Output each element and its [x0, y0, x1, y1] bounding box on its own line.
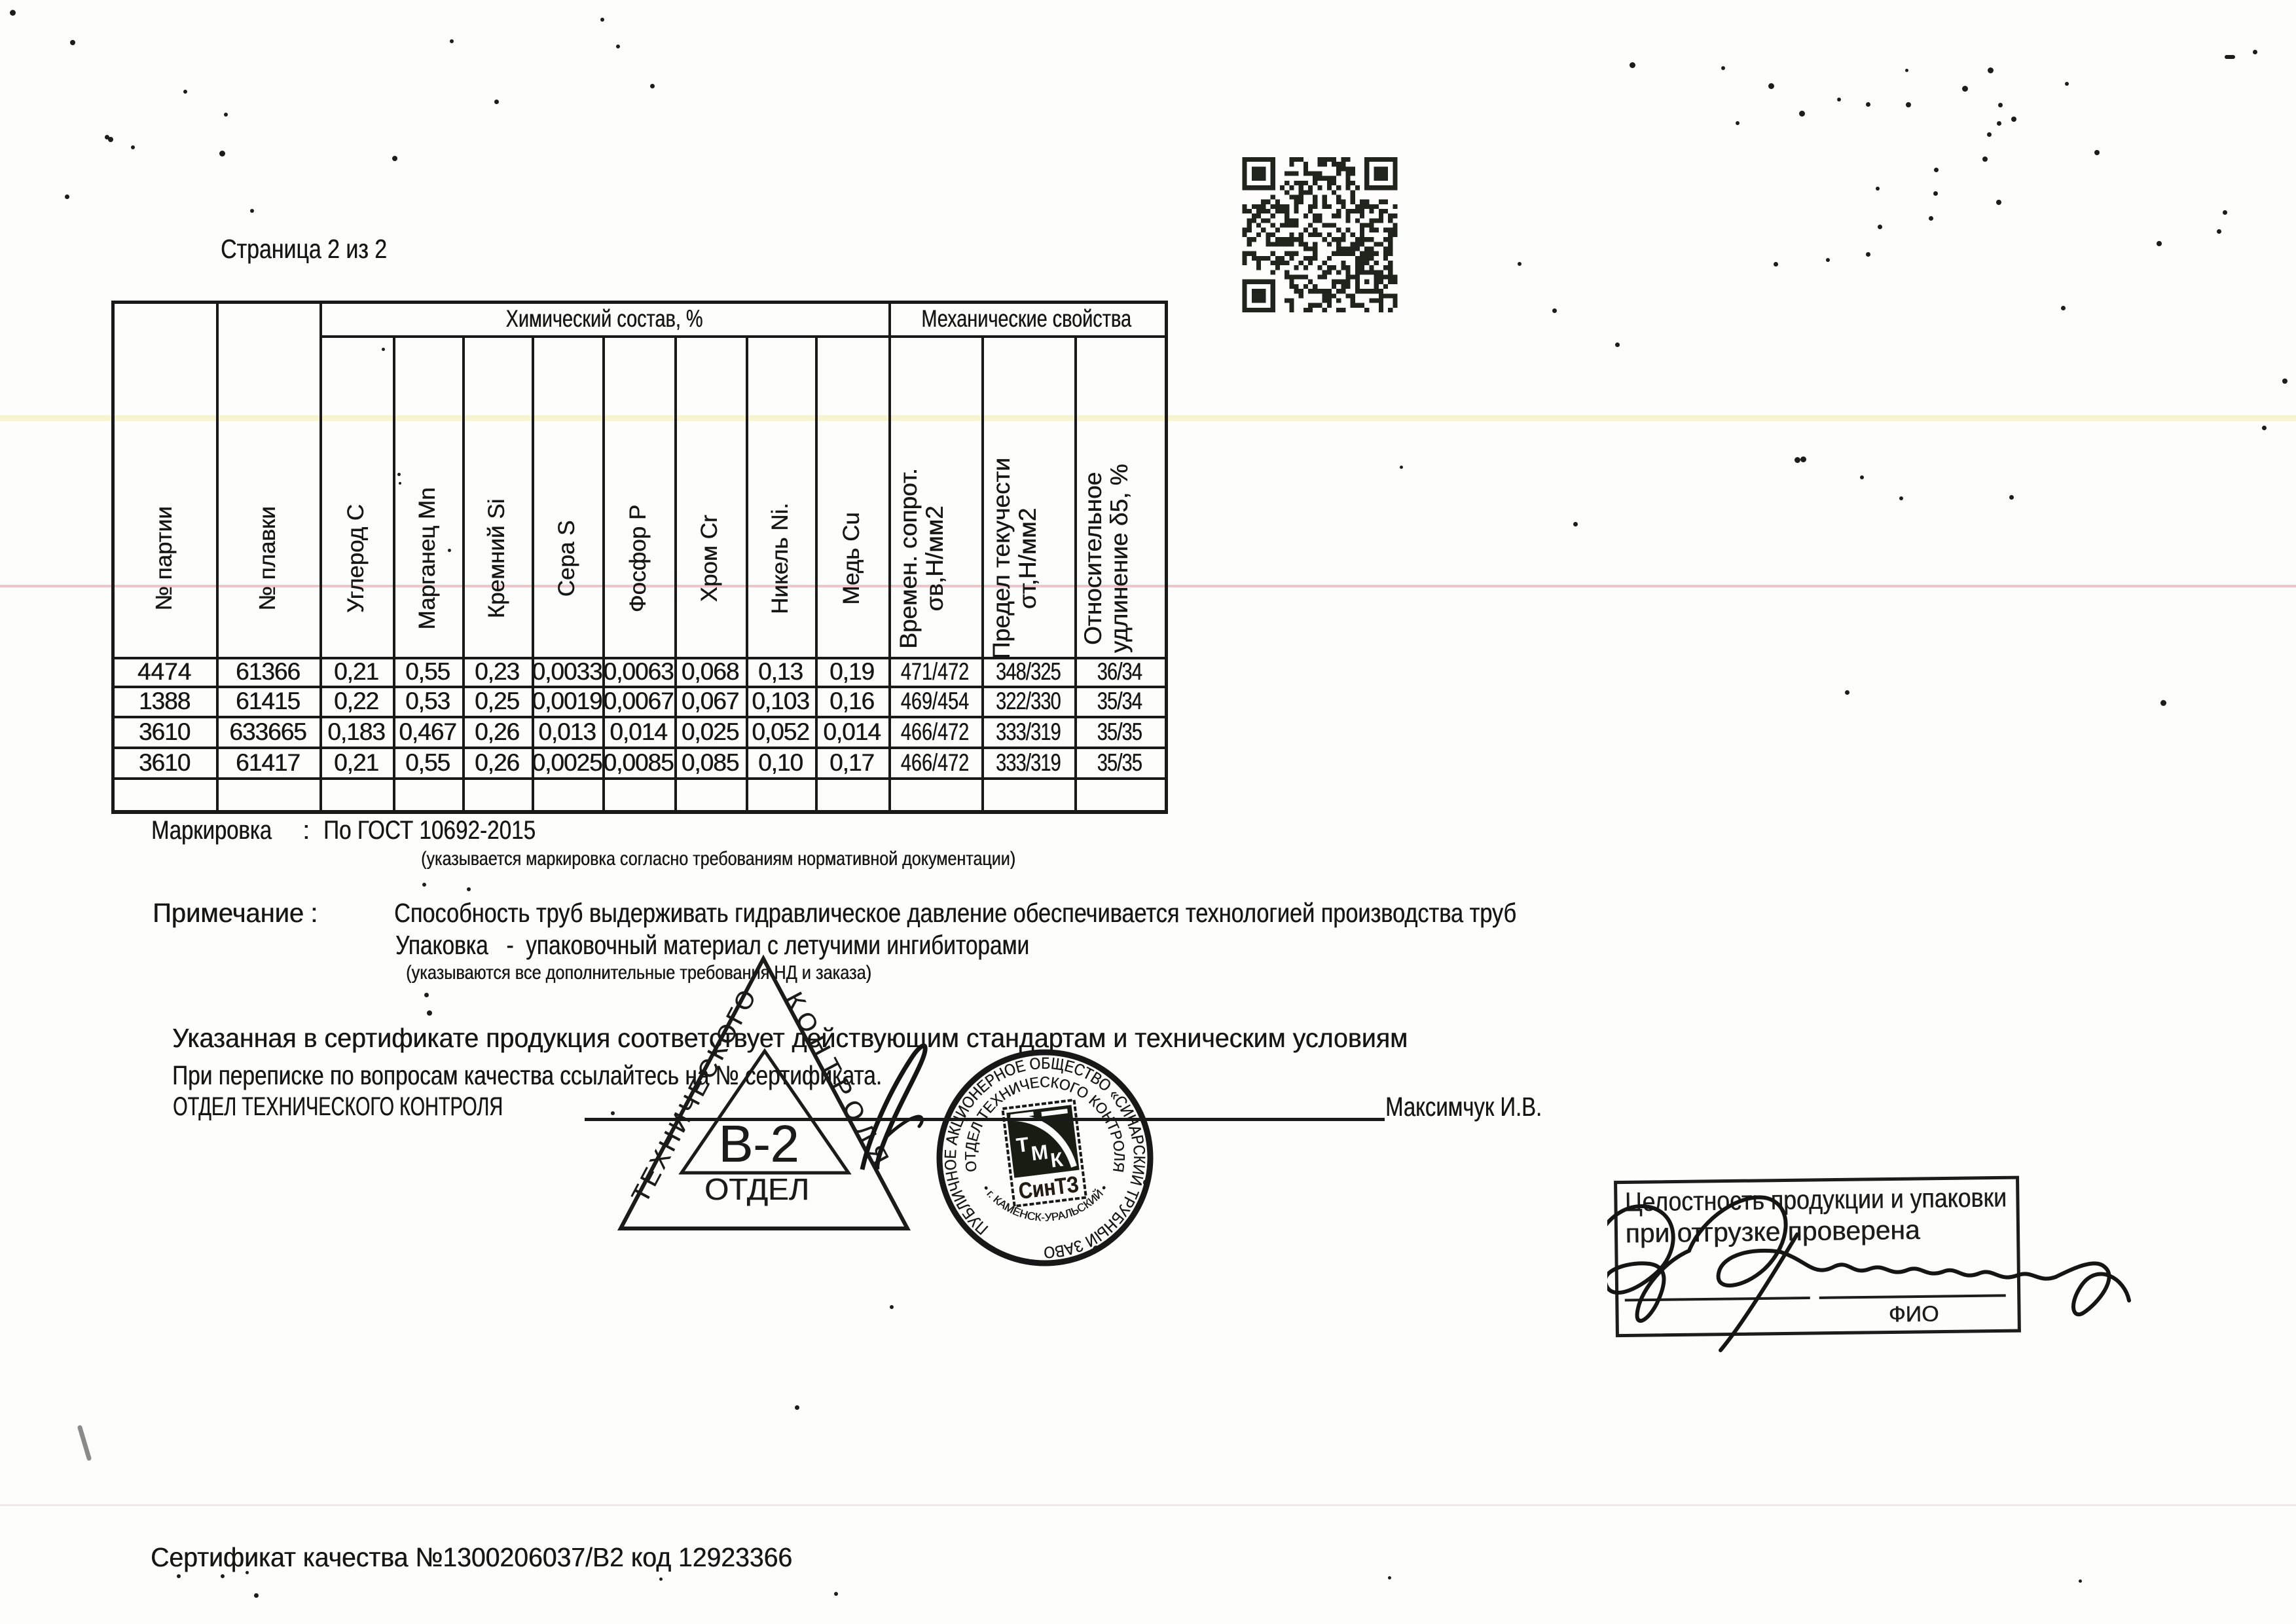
- svg-text:М: М: [1030, 1140, 1049, 1165]
- svg-text:ОТДЕЛ: ОТДЕЛ: [704, 1172, 809, 1206]
- svg-text:ФИО: ФИО: [1888, 1302, 1939, 1327]
- svg-text:Целостность продукции и упаков: Целостность продукции и упаковки: [1625, 1182, 2007, 1217]
- svg-text:В-2: В-2: [719, 1115, 799, 1173]
